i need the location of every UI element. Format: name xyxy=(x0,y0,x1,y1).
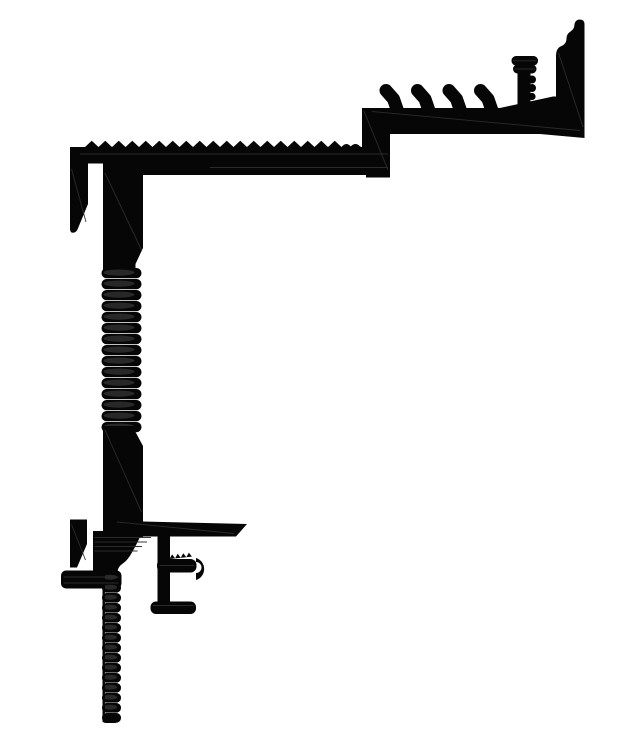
clip-base-pad xyxy=(151,602,197,615)
strip-end-cap xyxy=(103,714,119,723)
rib xyxy=(102,290,142,300)
rib xyxy=(102,301,142,311)
end-wall xyxy=(556,20,585,135)
rib xyxy=(102,378,142,388)
stud-rib xyxy=(528,84,536,92)
drawing-canvas xyxy=(0,0,631,732)
clip xyxy=(151,534,205,614)
rib xyxy=(102,323,142,333)
rib xyxy=(102,345,142,355)
stud-rib xyxy=(528,93,535,100)
web-threaded-section xyxy=(102,268,142,432)
extrusion-profile-drawing xyxy=(0,0,631,732)
web-upper xyxy=(103,168,143,272)
profile-ink xyxy=(61,20,585,724)
web-lower xyxy=(103,426,143,537)
rib xyxy=(102,400,142,410)
rib xyxy=(102,367,142,377)
rib xyxy=(102,334,142,344)
rib xyxy=(102,268,142,278)
rib xyxy=(102,411,142,421)
rib xyxy=(102,389,142,399)
rib xyxy=(102,279,142,289)
stud-rib xyxy=(528,76,536,84)
rib xyxy=(102,356,142,366)
clip-tab-teeth xyxy=(170,553,192,559)
upper-shelf-bottom-wedge xyxy=(540,134,585,138)
clip-curled-lip xyxy=(196,558,204,580)
ribbed-stud xyxy=(512,56,539,108)
anchor-strip xyxy=(102,573,121,723)
strip-left-edge xyxy=(103,574,105,722)
rib xyxy=(102,312,142,322)
